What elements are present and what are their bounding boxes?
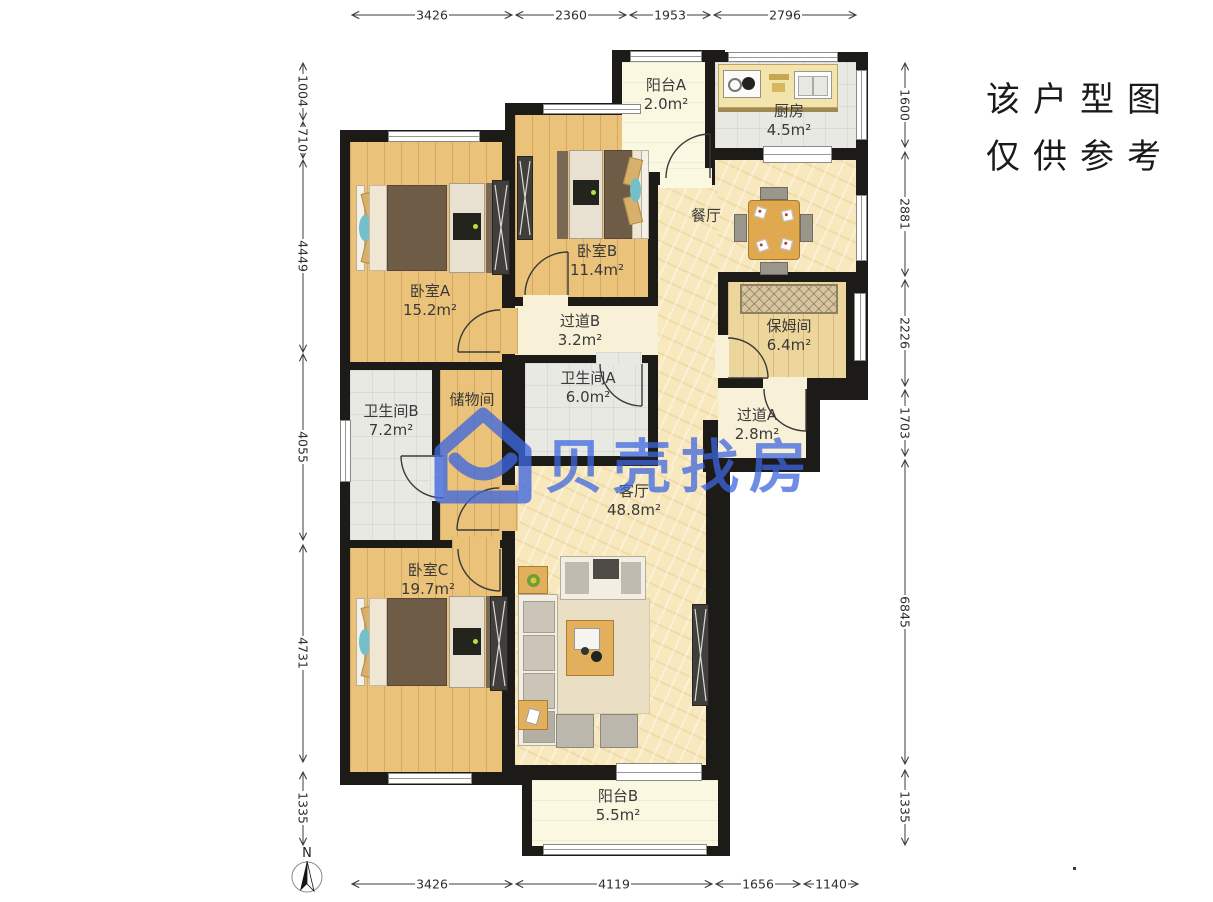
dim-label: 1953 [654,8,686,23]
room-label-kitchen: 厨房 4.5m² [767,102,811,140]
room-name: 卧室B [570,242,624,261]
nanny-mat [740,284,838,314]
dim-label: 3426 [416,8,448,23]
room-area: 5.5m² [596,806,640,825]
dim-label: 2881 [898,198,913,230]
bed-blanket [387,185,447,271]
room-name: 卧室A [403,282,457,301]
room-name: 餐厅 [691,207,721,226]
window [854,293,866,361]
door-opening [715,335,729,378]
room-name: 保姆间 [766,317,811,336]
room-floor-bathroom-b [350,370,432,540]
dim-label: 4055 [296,431,311,463]
door-opening [660,168,712,188]
disclaimer-text: 该户型图 仅供参考 [986,72,1174,186]
door-opening [452,537,500,549]
door-opening [500,308,518,354]
disclaimer-line-1: 该户型图 [986,72,1174,129]
wardrobe-closet [492,180,510,275]
dim-label: 4119 [598,877,630,892]
room-area: 19.7m² [401,580,455,599]
room-label-bedroom-c: 卧室C 19.7m² [401,561,455,599]
entry-door-opening [763,377,807,389]
window [728,52,838,62]
dim-label: 1004 [296,75,311,107]
dining-table [748,200,800,260]
room-area: 7.2m² [363,421,418,440]
kettle [769,74,789,80]
room-name: 阳台B [596,787,640,806]
dim-label: 2226 [898,317,913,349]
window [630,51,702,62]
dimension-top-labels: 3426 2360 1953 2796 [415,8,802,23]
dining-chair [760,187,788,200]
side-table-plant [518,566,548,594]
room-label-bathroom-a: 卫生间A 6.0m² [560,369,615,407]
dim-label: 1600 [898,89,913,121]
room-label-balcony-a: 阳台A 2.0m² [644,76,688,114]
room-area: 2.0m² [644,95,688,114]
dim-label: 4731 [296,637,311,669]
dim-label: 2796 [769,8,801,23]
north-compass-icon [292,861,322,892]
kettle [772,83,785,92]
sink [794,71,832,99]
dim-label: 4449 [296,240,311,272]
dim-label: 710 [296,128,311,152]
dim-label: 1703 [898,407,913,439]
watermark-text: 贝壳找房 [545,420,817,504]
room-area: 6.0m² [560,388,615,407]
room-area: 3.2m² [558,331,602,350]
room-name: 过道B [558,312,602,331]
window [388,131,480,142]
bed-sheet [369,185,387,271]
dimension-left-labels: 1004 710 4449 4055 4731 1335 [296,74,311,825]
room-label-balcony-b: 阳台B 5.5m² [596,787,640,825]
stove [723,70,761,98]
sliding-door [616,763,702,781]
dimension-bottom-labels: 3426 4119 1656 1140 [415,877,848,892]
sliding-door [763,146,832,163]
coffee-table [566,620,614,676]
bed-cushion [630,178,641,202]
room-label-bedroom-a: 卧室A 15.2m² [403,282,457,320]
room-label-hallway-b: 过道B 3.2m² [558,312,602,350]
room-name: 卧室C [401,561,455,580]
ottoman-chair [556,714,594,748]
room-name: 卫生间A [560,369,615,388]
window [856,195,867,261]
room-name: 卫生间B [363,402,418,421]
room-area: 11.4m² [570,261,624,280]
window [543,104,641,114]
room-name: 阳台A [644,76,688,95]
dining-chair [800,214,813,242]
north-label: N [302,846,312,861]
dim-label: 1656 [742,877,774,892]
room-label-nanny: 保姆间 6.4m² [766,317,811,355]
dimension-right-labels: 1600 2881 2226 1703 6845 1335 [898,88,913,824]
beike-house-logo-icon [428,403,538,507]
dining-chair [760,262,788,275]
room-label-dining: 餐厅 [691,207,721,226]
tv-panel [453,628,481,655]
side-table-book [518,700,548,730]
dim-label: 1335 [898,791,913,823]
room-area: 15.2m² [403,301,457,320]
dim-label: 2360 [555,8,587,23]
ottoman-chair [600,714,638,748]
tv-cabinet [692,604,709,706]
room-area: 6.4m² [766,336,811,355]
room-area: 4.5m² [767,121,811,140]
wardrobe-closet [490,596,508,691]
window [856,70,867,140]
cabinet-strip [557,151,568,239]
room-label-bathroom-b: 卫生间B 7.2m² [363,402,418,440]
artifact-dot [1073,867,1076,870]
room-name: 厨房 [767,102,811,121]
dim-label: 1140 [815,877,847,892]
wardrobe-closet [517,156,533,240]
bed-sheet [369,598,387,686]
room-label-bedroom-b: 卧室B 11.4m² [570,242,624,280]
window [388,773,472,784]
tv-panel [573,180,599,205]
door-opening [523,295,568,309]
bed-blanket [387,598,447,686]
dim-label: 1335 [296,792,311,824]
dim-label: 3426 [416,877,448,892]
window [340,420,351,482]
dim-label: 6845 [898,596,913,628]
dining-chair [734,214,747,242]
balcony-railing-window [543,844,707,855]
disclaimer-line-2: 仅供参考 [986,129,1174,186]
tv-panel [453,213,481,240]
floor-plan-canvas: 3426 2360 1953 2796 3426 4119 1656 1140 [0,0,1213,902]
sofa-loveseat [560,556,646,600]
door-opening [596,352,642,365]
